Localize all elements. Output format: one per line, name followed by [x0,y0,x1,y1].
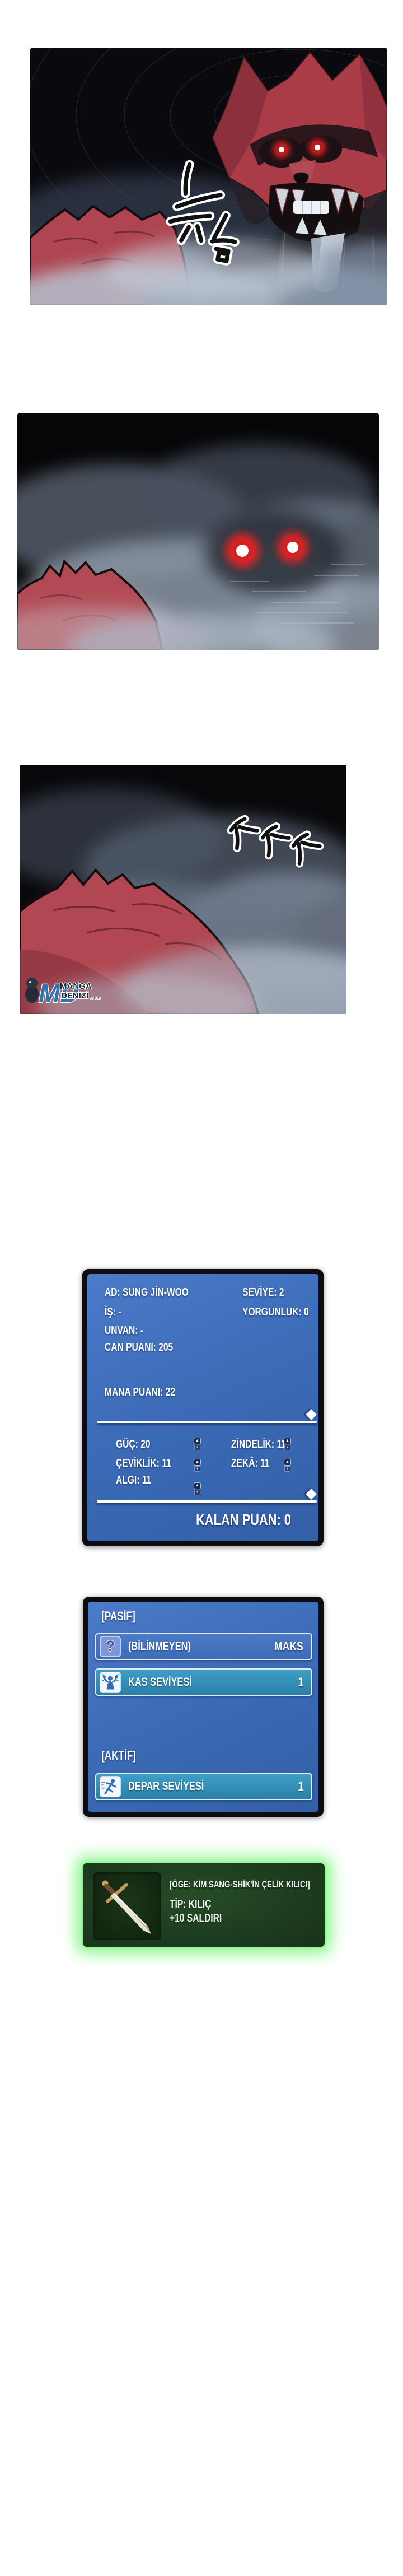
skill-name: DEPAR SEVİYESİ [128,1780,204,1793]
watermark-line1: MANGA [60,982,92,991]
wolf-back-artwork: MD MANGA DENİZİ .com [20,765,346,1014]
arrow-up-icon[interactable]: ▲ [284,1459,291,1466]
agility-stepper[interactable]: ▲ ▼ [193,1459,201,1472]
arrow-down-icon[interactable]: ▼ [284,1445,290,1450]
item-icon-box [93,1872,161,1940]
question-icon: ? [100,1636,121,1657]
stat-hp: CAN PUANI: 205 [105,1342,173,1354]
active-section-header: [AKTİF] [101,1749,136,1762]
passive-section-header: [PASİF] [101,1610,135,1622]
watermark-line2: DENİZİ [61,991,88,1001]
stat-agility: ÇEVİKLİK: 11 [116,1458,171,1470]
strength-stepper[interactable]: ▲ ▼ [193,1438,201,1450]
arrow-up-icon[interactable]: ▲ [284,1438,291,1444]
item-title: [ÖGE: KİM SANG-SHİK'İN ÇELİK KILICI] [170,1879,310,1890]
fog-eyes-artwork [17,413,379,650]
stat-level: SEVİYE: 2 [242,1287,284,1299]
sword-icon [93,1872,161,1940]
status-window-body: AD: SUNG JİN-WOO İŞ: - UNVAN: - CAN PUAN… [87,1274,318,1541]
stat-strength: GÜÇ: 20 [116,1439,151,1450]
stat-intelligence: ZEKÂ: 11 [231,1458,269,1470]
stat-fatigue: YORGUNLUK: 0 [242,1306,309,1318]
arrow-down-icon[interactable]: ▼ [194,1466,200,1472]
runner-icon [100,1776,121,1797]
skill-name: KAS SEVİYESİ [128,1676,192,1689]
skill-row-sprint[interactable]: DEPAR SEVİYESİ 1 [95,1773,312,1800]
muscle-icon [100,1672,121,1693]
diamond-ornament [306,1489,317,1500]
arrow-up-icon[interactable]: ▲ [194,1459,201,1466]
skill-window-body: [PASİF] ? (BİLİNMEYEN) MAKS [88,1602,318,1812]
skill-name: (BİLİNMEYEN) [128,1640,191,1653]
item-window: [ÖGE: KİM SANG-SHİK'İN ÇELİK KILICI] TİP… [83,1863,325,1947]
status-window: AD: SUNG JİN-WOO İŞ: - UNVAN: - CAN PUAN… [82,1269,324,1546]
stat-name: AD: SUNG JİN-WOO [105,1287,189,1299]
arrow-down-icon[interactable]: ▼ [194,1490,200,1495]
comic-panel-wolf-snarling [30,48,387,305]
item-bonus: +10 SALDIRI [170,1912,222,1925]
skill-level: 1 [298,1779,303,1794]
comic-panel-glowing-eyes [17,413,379,650]
perception-stepper[interactable]: ▲ ▼ [193,1482,201,1495]
arrow-up-icon[interactable]: ▲ [194,1438,201,1444]
skill-window: [PASİF] ? (BİLİNMEYEN) MAKS [83,1597,324,1817]
wolf-artwork [30,48,387,305]
item-type: TİP: KILIÇ [170,1898,212,1911]
diamond-ornament [306,1409,317,1420]
webtoon-page: MD MANGA DENİZİ .com AD: SUNG JİN-WOO İŞ… [0,0,403,2576]
arrow-down-icon[interactable]: ▼ [284,1466,290,1472]
stat-mp: MANA PUANI: 22 [105,1387,175,1398]
stat-title: UNVAN: - [105,1325,143,1337]
stat-job: İŞ: - [105,1306,121,1318]
arrow-up-icon[interactable]: ▲ [194,1482,201,1489]
arrow-down-icon[interactable]: ▼ [194,1445,200,1450]
separator-line [97,1421,317,1423]
remaining-points-label: KALAN PUAN: 0 [174,1512,313,1528]
skill-row-muscle[interactable]: KAS SEVİYESİ 1 [95,1668,312,1696]
vitality-stepper[interactable]: ▲ ▼ [283,1438,292,1450]
skill-level: MAKS [274,1639,303,1654]
stat-vitality: ZİNDELİK: 11 [231,1439,286,1450]
stat-perception: ALGI: 11 [116,1475,151,1486]
skill-row-unknown[interactable]: ? (BİLİNMEYEN) MAKS [95,1633,312,1660]
separator-line [97,1500,317,1503]
watermark-suffix: .com [90,996,101,1001]
comic-panel-wolf-back: MD MANGA DENİZİ .com [20,765,346,1014]
skill-level: 1 [298,1675,303,1690]
intelligence-stepper[interactable]: ▲ ▼ [283,1459,292,1472]
